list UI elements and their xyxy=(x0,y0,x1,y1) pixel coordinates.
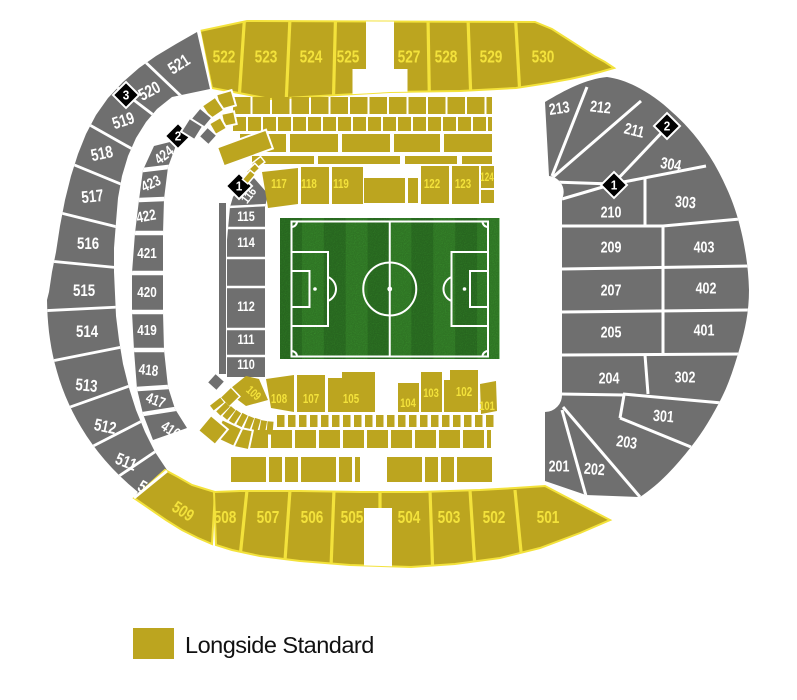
svg-text:402: 402 xyxy=(696,280,717,298)
svg-text:527: 527 xyxy=(398,48,421,67)
svg-text:122: 122 xyxy=(424,178,440,191)
svg-text:418: 418 xyxy=(138,361,160,380)
svg-text:212: 212 xyxy=(589,98,612,118)
svg-text:1: 1 xyxy=(236,179,243,194)
svg-text:302: 302 xyxy=(675,369,696,387)
svg-text:528: 528 xyxy=(435,48,458,67)
svg-text:102: 102 xyxy=(456,386,472,399)
svg-text:119: 119 xyxy=(333,178,349,191)
svg-text:112: 112 xyxy=(237,299,255,315)
svg-text:507: 507 xyxy=(257,509,280,528)
svg-text:502: 502 xyxy=(483,509,506,528)
svg-text:422: 422 xyxy=(135,206,157,226)
svg-text:207: 207 xyxy=(601,282,622,300)
svg-text:108: 108 xyxy=(271,393,287,406)
svg-text:1: 1 xyxy=(611,178,618,193)
svg-text:201: 201 xyxy=(549,458,570,476)
svg-text:115: 115 xyxy=(237,209,255,225)
svg-text:209: 209 xyxy=(601,239,622,257)
svg-text:Longside Standard: Longside Standard xyxy=(185,632,374,658)
svg-text:301: 301 xyxy=(652,407,674,427)
svg-text:419: 419 xyxy=(137,322,157,339)
svg-text:203: 203 xyxy=(615,433,638,454)
svg-text:524: 524 xyxy=(300,48,323,67)
svg-text:517: 517 xyxy=(80,186,104,207)
svg-text:525: 525 xyxy=(337,48,360,67)
svg-text:505: 505 xyxy=(341,509,364,528)
svg-text:401: 401 xyxy=(694,322,715,340)
svg-text:514: 514 xyxy=(76,323,99,342)
svg-text:204: 204 xyxy=(599,370,620,388)
svg-text:304: 304 xyxy=(659,155,683,176)
svg-text:421: 421 xyxy=(137,245,157,262)
svg-text:504: 504 xyxy=(398,509,421,528)
svg-text:205: 205 xyxy=(601,324,622,342)
svg-text:523: 523 xyxy=(255,48,278,67)
svg-text:303: 303 xyxy=(674,193,696,213)
svg-text:213: 213 xyxy=(548,99,571,120)
svg-text:118: 118 xyxy=(301,178,317,191)
svg-text:2: 2 xyxy=(664,119,671,134)
svg-text:124: 124 xyxy=(480,172,494,185)
svg-text:103: 103 xyxy=(423,387,439,400)
svg-text:516: 516 xyxy=(77,235,99,254)
svg-text:210: 210 xyxy=(601,204,622,222)
svg-text:105: 105 xyxy=(343,393,359,406)
svg-text:506: 506 xyxy=(301,509,324,528)
svg-text:522: 522 xyxy=(213,48,236,67)
svg-text:111: 111 xyxy=(237,332,254,348)
svg-text:420: 420 xyxy=(137,284,157,301)
svg-text:529: 529 xyxy=(480,48,503,67)
svg-text:503: 503 xyxy=(438,509,461,528)
svg-text:110: 110 xyxy=(237,357,255,373)
svg-text:104: 104 xyxy=(400,397,416,410)
svg-text:114: 114 xyxy=(237,235,255,251)
svg-text:530: 530 xyxy=(532,48,555,67)
svg-text:515: 515 xyxy=(73,282,96,301)
svg-text:117: 117 xyxy=(271,178,287,191)
svg-text:508: 508 xyxy=(214,509,237,528)
svg-text:403: 403 xyxy=(694,239,715,257)
svg-text:123: 123 xyxy=(455,178,471,191)
svg-text:501: 501 xyxy=(537,509,560,528)
svg-text:107: 107 xyxy=(303,393,319,406)
svg-text:3: 3 xyxy=(123,88,130,103)
svg-text:202: 202 xyxy=(583,460,605,480)
svg-text:513: 513 xyxy=(75,376,99,397)
svg-text:101: 101 xyxy=(479,400,495,413)
